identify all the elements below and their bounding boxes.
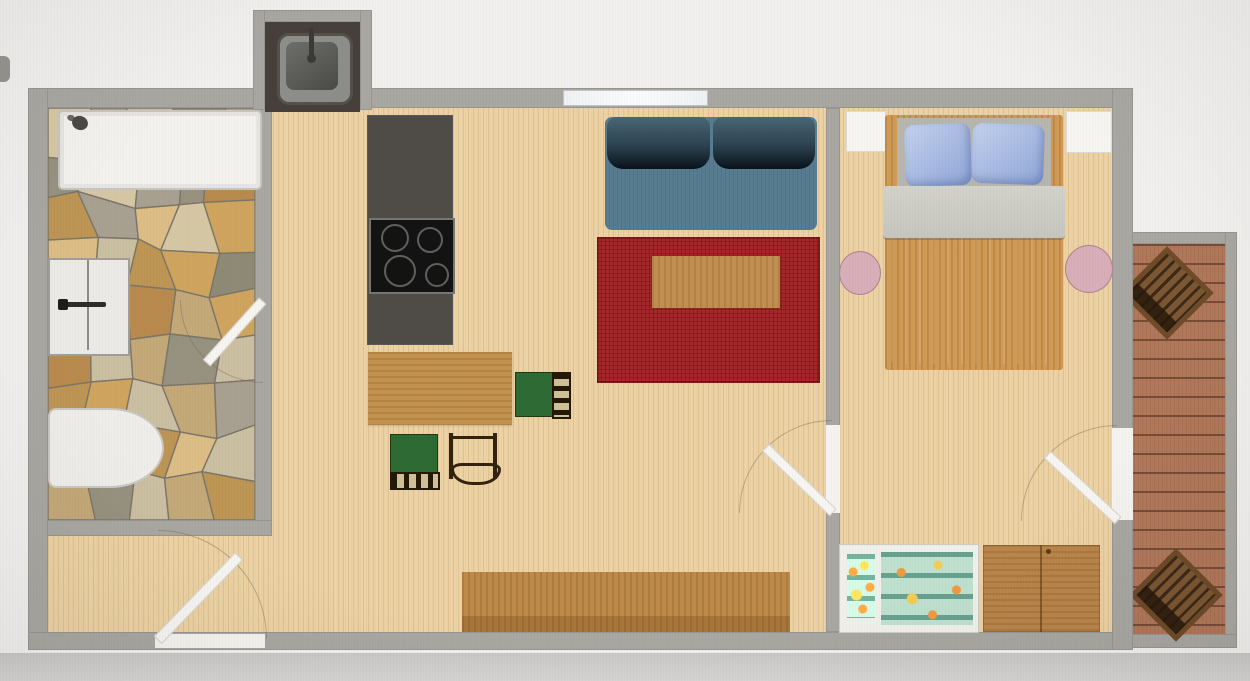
wall-right [1112,88,1133,650]
double-bed [885,115,1063,370]
sink-alcove [253,10,372,112]
chair-frame-top [451,436,495,439]
dresser-knob [1046,549,1051,554]
wall-top-right [360,88,1133,108]
sofa-back-cushion-left [607,117,710,169]
bed-pillow-right [971,123,1045,185]
dining-chair-left [390,434,436,488]
sink-faucet-icon [309,28,314,56]
kitchen-sink [277,33,353,105]
dining-table [368,352,512,425]
burner-top-left [381,224,409,252]
chair-back-curve [451,463,501,485]
photo-edge-mark [0,56,10,82]
dining-chair-right [515,372,567,415]
photo-bottom-band [0,653,1250,681]
chair-back-slats [390,472,440,490]
toilet [48,408,164,488]
alcove-wall-right [360,10,372,110]
dresser [983,545,1100,632]
bedroom-window-unit-left [846,111,886,152]
bathroom-cabinet [48,258,130,356]
deck [1125,232,1237,648]
sofa [605,117,817,230]
chair-seat [515,372,554,417]
cabinet-handle-knob [58,299,68,310]
kids-bed-mattress [881,552,973,625]
deck-wall-right [1225,232,1237,648]
bedside-table-left [839,251,881,295]
interior-wall-living-bedroom [826,108,840,632]
sofa-back-cushion-right [713,117,815,169]
cabinet-handle [62,302,106,307]
deck-wall-top [1125,232,1237,244]
faucet-spout [307,54,316,63]
burner-bottom-left [384,255,416,287]
bathtub [58,110,262,190]
dining-chair-middle [449,433,497,483]
kids-bed-pillow [847,554,875,618]
living-room-window [563,90,708,106]
cooktop [369,218,455,294]
sideboard [462,572,790,632]
wall-top-left [28,88,265,108]
bed-pillow-left [904,123,972,187]
bed-blanket [883,186,1065,238]
bedside-table-right [1065,245,1113,293]
burner-top-right [417,227,443,253]
chair-seat [390,434,438,474]
kids-bed [839,544,979,633]
burner-bottom-right [425,263,449,287]
alcove-wall-top [253,10,372,22]
wall-left [28,88,48,650]
alcove-wall-left [253,10,265,110]
coffee-table [652,256,780,308]
bathroom-wall-bottom [28,520,272,536]
dresser-door-seam [1040,545,1042,632]
bedroom-window-unit-right [1066,111,1112,153]
chair-back-slats [552,372,571,419]
bed-duvet [891,238,1051,364]
